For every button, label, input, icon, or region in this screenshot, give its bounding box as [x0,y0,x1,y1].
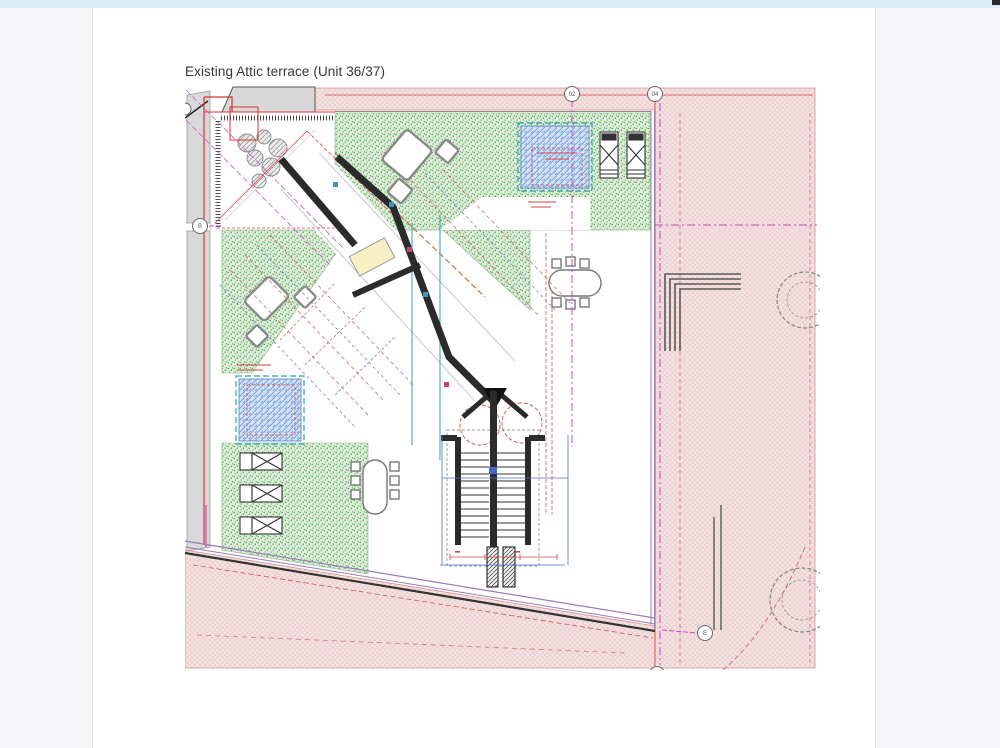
floor-plan-drawing: 02 04 B E [185,85,820,670]
grid-bubble-E: E [698,626,713,641]
sun-loungers-left [240,453,282,534]
grid-bubble-02: 02 [565,87,580,102]
svg-text:B: B [198,224,202,230]
page-title: Existing Attic terrace (Unit 36/37) [185,64,385,79]
browser-top-strip [0,0,1000,8]
grid-bubble-04: 04 [648,87,663,102]
app-window: { "app": { "topbar_color": "#d8ecfa", "p… [0,0,1000,748]
skylight-left [236,365,304,444]
svg-text:02: 02 [569,92,576,98]
staircase-core [440,388,568,587]
svg-text:04: 04 [652,92,659,98]
right-margin-panel [875,8,1000,748]
dining-table-right [549,257,601,309]
grid-bubble-B: B [193,219,208,234]
left-margin-panel [0,8,93,748]
window-corner-notch [992,0,1000,5]
svg-text:E: E [703,631,707,637]
skylight-top [518,123,592,191]
